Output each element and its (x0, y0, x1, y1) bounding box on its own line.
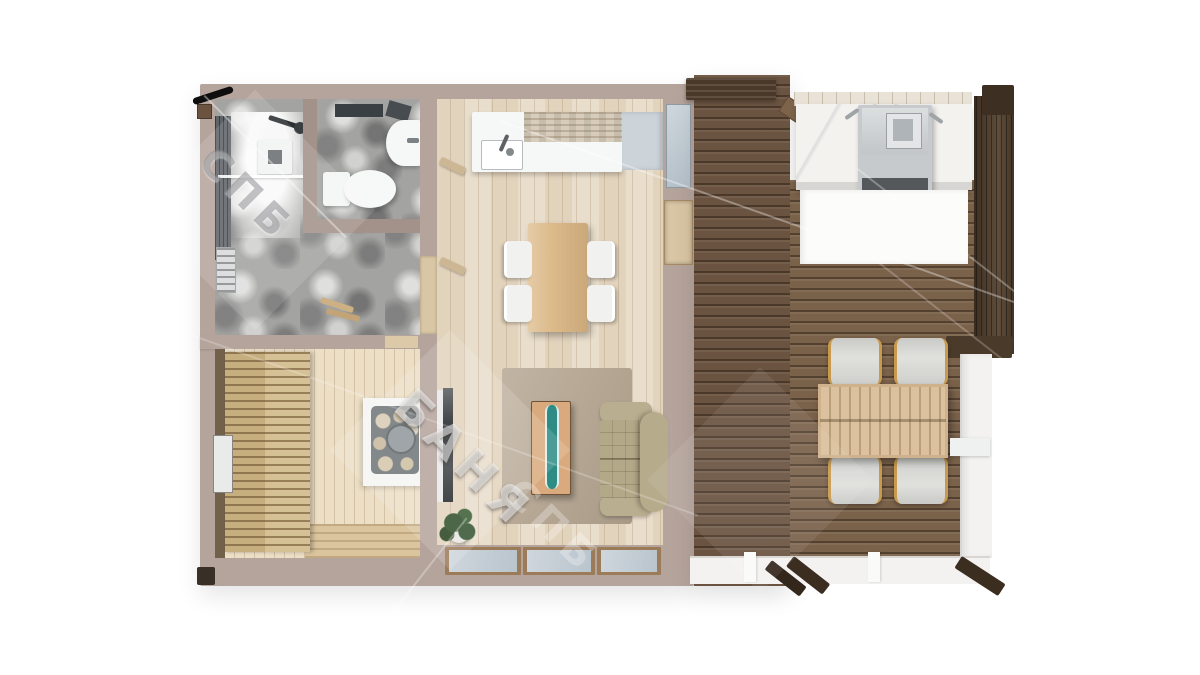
sauna-stove-chimney (386, 424, 416, 454)
towel-radiator (216, 247, 236, 293)
privacy-slat-wall (974, 96, 1014, 354)
railing-post-2 (868, 552, 880, 582)
deck-top-beam (686, 78, 776, 100)
sauna-floor-lower (305, 524, 420, 558)
shower-glass-partition (218, 175, 304, 178)
tv-screen (443, 388, 453, 502)
dining-chair-3 (587, 241, 615, 278)
sauna-window (213, 435, 233, 493)
dining-chair-4 (587, 285, 615, 322)
central-wall (420, 84, 437, 586)
window-glass-1 (449, 550, 517, 572)
floorplan-render: СПБ БАНЯ СПБ (0, 0, 1200, 675)
outdoor-chair-4 (894, 456, 948, 504)
bathroom-sink (386, 120, 422, 166)
corner-post-bottom-left (197, 567, 215, 585)
toilet-bowl (344, 170, 396, 208)
window-glass-3 (601, 550, 657, 572)
sink-faucet (407, 138, 419, 143)
toilet-room-bottom-wall (303, 219, 437, 233)
kitchen-faucet-head (506, 148, 514, 156)
dining-chair-2 (504, 285, 532, 322)
side-window-glass (666, 104, 691, 188)
railing-right (960, 354, 992, 558)
sauna-door-threshold (385, 336, 418, 348)
toilet-room-vent (335, 104, 383, 117)
shower-drain (268, 150, 282, 164)
sofa-backrest (640, 412, 668, 512)
outdoor-chair-2 (894, 338, 948, 386)
deck-door (664, 200, 693, 265)
outdoor-chair-1 (828, 338, 882, 386)
potted-plant (436, 503, 480, 547)
kitchen-appliance (622, 112, 663, 170)
bathroom-door (420, 256, 437, 334)
grill-floor-pad (800, 190, 968, 264)
dining-chair-1 (504, 241, 532, 278)
coffee-table-epoxy-river (545, 405, 559, 489)
railing-post-1 (744, 552, 756, 582)
window-glass-2 (527, 550, 591, 572)
deck-breezeway (694, 75, 790, 586)
kitchen-counter-wood-top (524, 112, 622, 142)
slat-wall-cap-top (982, 85, 1014, 115)
railing-right-crossbar (950, 438, 990, 456)
toilet-room-left-wall (303, 99, 317, 233)
grill-chimney-opening (893, 119, 913, 141)
outdoor-table-center-gap (820, 419, 946, 422)
sauna-bench-lower (265, 352, 310, 552)
outdoor-chair-3 (828, 456, 882, 504)
railing-bottom (690, 556, 990, 584)
dining-table (528, 223, 588, 332)
shower-wall-panel (215, 116, 231, 260)
corner-post-top-left (197, 104, 212, 119)
